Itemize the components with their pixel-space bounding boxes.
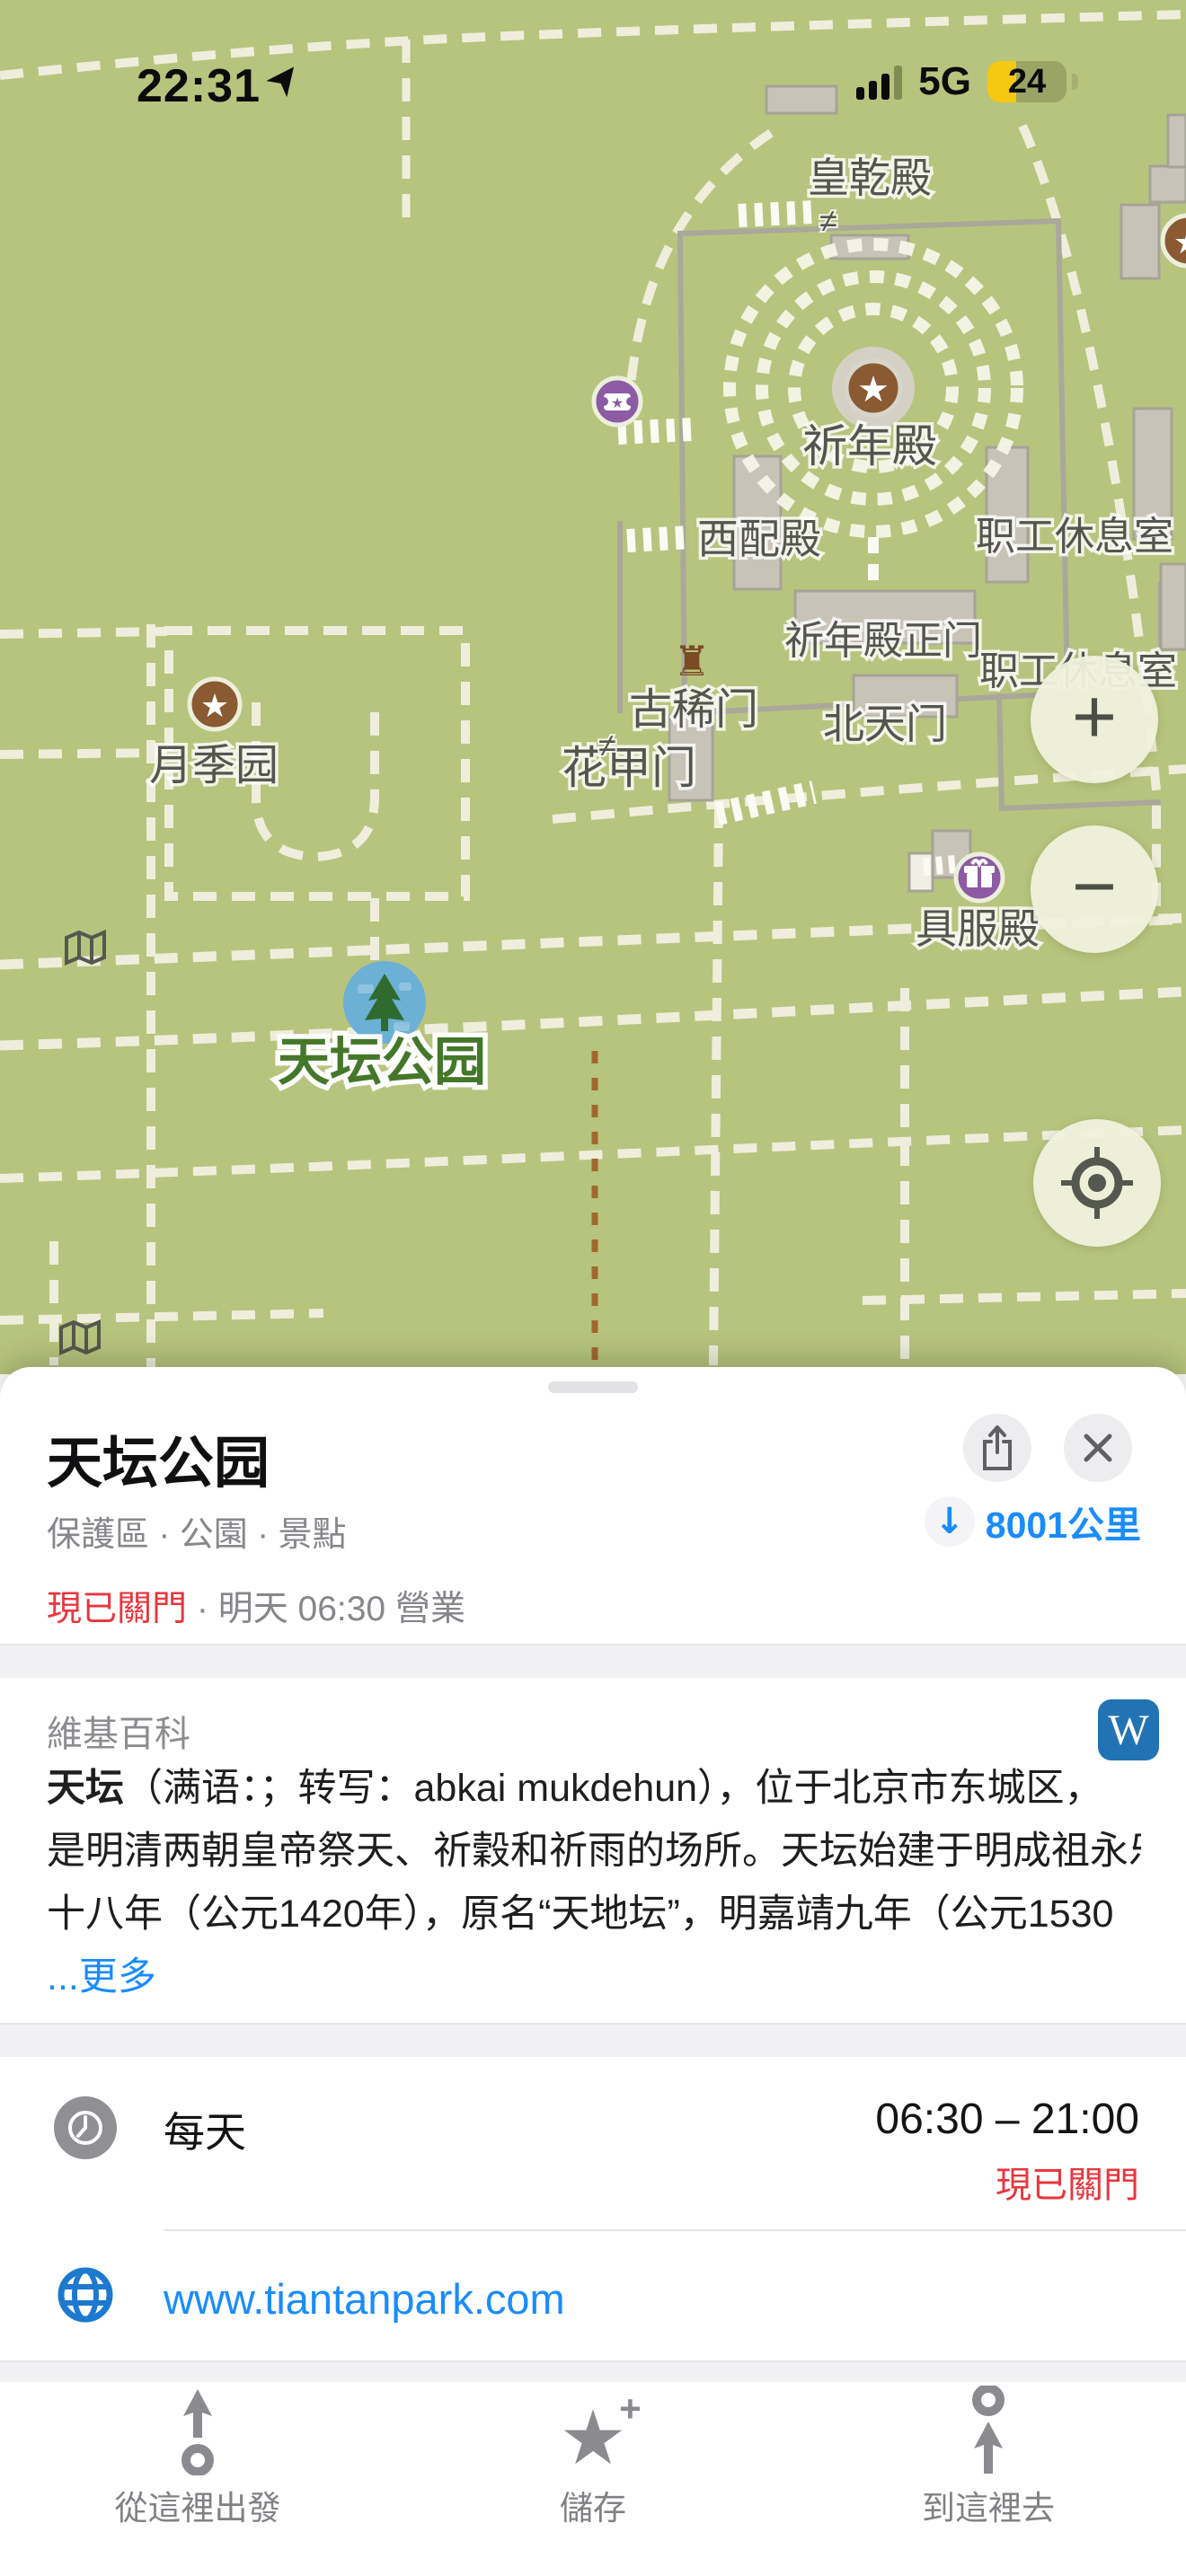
map-label-xipeidian: 西配殿 xyxy=(697,516,821,562)
map-label-jufudian: 具服殿 xyxy=(916,905,1040,952)
signal-strength-icon xyxy=(856,64,902,100)
map-label-guximen: 古稀门 xyxy=(629,686,758,734)
svg-text:★: ★ xyxy=(1173,225,1186,261)
gate-marker: ≠ xyxy=(598,727,616,763)
wikipedia-logo-icon: W xyxy=(1098,1699,1159,1760)
dot-separator: · xyxy=(187,1590,218,1628)
open-status-row: 現已關門 · 明天 06:30 營業 xyxy=(47,1581,465,1631)
arrive-arrow-icon xyxy=(954,2386,1022,2475)
place-title: 天坛公园 xyxy=(47,1417,270,1498)
network-type: 5G xyxy=(918,59,971,104)
share-button[interactable] xyxy=(963,1414,1031,1482)
svg-text:★: ★ xyxy=(611,394,624,411)
navigation-arrow-icon: ➤ xyxy=(253,49,313,107)
opens-tomorrow-label: 明天 06:30 營業 xyxy=(218,1590,465,1628)
locate-button[interactable] xyxy=(1033,1119,1161,1247)
hours-closed-status: 現已關門 xyxy=(996,2156,1139,2208)
share-icon xyxy=(978,1424,1017,1472)
gate-marker: ≠ xyxy=(819,202,837,239)
directions-to-here-button[interactable]: 到這裡去 xyxy=(854,2382,1123,2576)
clock-icon xyxy=(54,2096,117,2159)
place-bottom-sheet: 天坛公园 保護區 · 公園 · 景點 ↓ 8001公里 現已關門 · 明天 06… xyxy=(0,1367,1186,2576)
close-button[interactable] xyxy=(1064,1414,1132,1482)
sheet-drag-handle[interactable] xyxy=(548,1381,638,1393)
map-label-park: 天坛公园 xyxy=(278,1033,486,1091)
route-distance-chip[interactable]: ↓ 8001公里 xyxy=(925,1495,1141,1548)
save-button[interactable]: ★+ 儲存 xyxy=(458,2382,728,2576)
map-label-qiniandian-gate: 祈年殿正门 xyxy=(784,619,982,663)
wiki-line1: （满语：；转写：abkai mukdehun），位于北京市东城区， xyxy=(124,1767,1103,1810)
park-pin[interactable] xyxy=(343,961,426,1044)
action-toolbar: 從這裡出發 ★+ 儲存 到這裡去 xyxy=(0,2382,1186,2576)
clock-time: 22:31 xyxy=(137,59,261,113)
map-label-qiniandian: 祈年殿 xyxy=(802,421,937,472)
place-header-card: 天坛公园 保護區 · 公園 · 景點 ↓ 8001公里 現已關門 · 明天 06… xyxy=(0,1367,1186,1644)
details-card: 每天 06:30 – 21:00 現已關門 www.tiantanpark.co… xyxy=(0,2057,1186,2360)
wiki-lead: 天坛 xyxy=(47,1767,124,1810)
zoom-in-button[interactable]: + xyxy=(1031,656,1158,783)
close-icon xyxy=(1082,1432,1114,1464)
wikipedia-header: 維基百科 xyxy=(47,1705,190,1757)
map[interactable]: ★ ★ ★ ★ ♜ 皇乾殿 祈年殿 西配殿 职工休息室 xyxy=(0,0,1186,1374)
svg-text:★: ★ xyxy=(857,369,889,410)
tower-icon: ♜ xyxy=(673,637,710,685)
row-divider xyxy=(164,2229,1186,2231)
map-label-staff-room-1: 职工休息室 xyxy=(976,515,1173,559)
direction-arrow-icon: ↓ xyxy=(925,1496,975,1547)
poi-gift-icon[interactable] xyxy=(956,854,1003,901)
depart-arrow-icon xyxy=(164,2386,232,2475)
poi-yuejiyuan-star-icon[interactable]: ★ xyxy=(190,679,240,729)
battery-icon: 24 xyxy=(987,61,1067,102)
more-link[interactable]: ...更多 xyxy=(47,1945,1141,2008)
wiki-line3: 十八年（公元1420年），原名“天地坛”，明嘉靖九年（公元1530 xyxy=(47,1883,1141,1945)
map-label-beitianmen: 北天门 xyxy=(823,701,947,747)
map-label-yuejiyuan: 月季园 xyxy=(149,742,279,790)
poi-ticket-icon[interactable]: ★ xyxy=(594,378,641,425)
save-star-icon: ★+ xyxy=(559,2382,626,2475)
wikipedia-extract: 天坛（满语：；转写：abkai mukdehun），位于北京市东城区， 是明清两… xyxy=(47,1757,1141,2008)
section-gap xyxy=(0,2023,1186,2060)
website-link[interactable]: www.tiantanpark.com xyxy=(164,2274,565,2324)
svg-text:★: ★ xyxy=(200,688,229,725)
section-gap xyxy=(0,1644,1186,1681)
minus-icon: − xyxy=(1072,848,1117,925)
globe-icon xyxy=(54,2263,117,2326)
hours-time-range: 06:30 – 21:00 xyxy=(875,2095,1139,2144)
map-label-huangqiandian: 皇乾殿 xyxy=(808,154,932,201)
place-category: 保護區 · 公園 · 景點 xyxy=(47,1506,347,1556)
poi-qiniandian-star-icon[interactable]: ★ xyxy=(832,347,915,429)
hours-day-label: 每天 xyxy=(164,2100,246,2159)
locate-crosshair-icon xyxy=(1059,1145,1135,1221)
directions-from-here-button[interactable]: 從這裡出發 xyxy=(63,2382,332,2576)
zoom-out-button[interactable]: − xyxy=(1031,825,1158,953)
battery-percent: 24 xyxy=(987,61,1067,102)
closed-now-label: 現已關門 xyxy=(47,1590,187,1628)
distance-value: 8001公里 xyxy=(986,1495,1141,1548)
wikipedia-card: 維基百科 W 天坛（满语：；转写：abkai mukdehun），位于北京市东城… xyxy=(0,1678,1186,2023)
plus-icon: + xyxy=(1072,678,1117,755)
wiki-line2: 是明清两朝皇帝祭天、祈穀和祈雨的场所。天坛始建于明成祖永乐 xyxy=(47,1820,1141,1883)
map-label-huajiamen: 花甲门 xyxy=(562,743,696,793)
status-bar: 22:31 ➤ 5G 24 xyxy=(0,0,1186,135)
